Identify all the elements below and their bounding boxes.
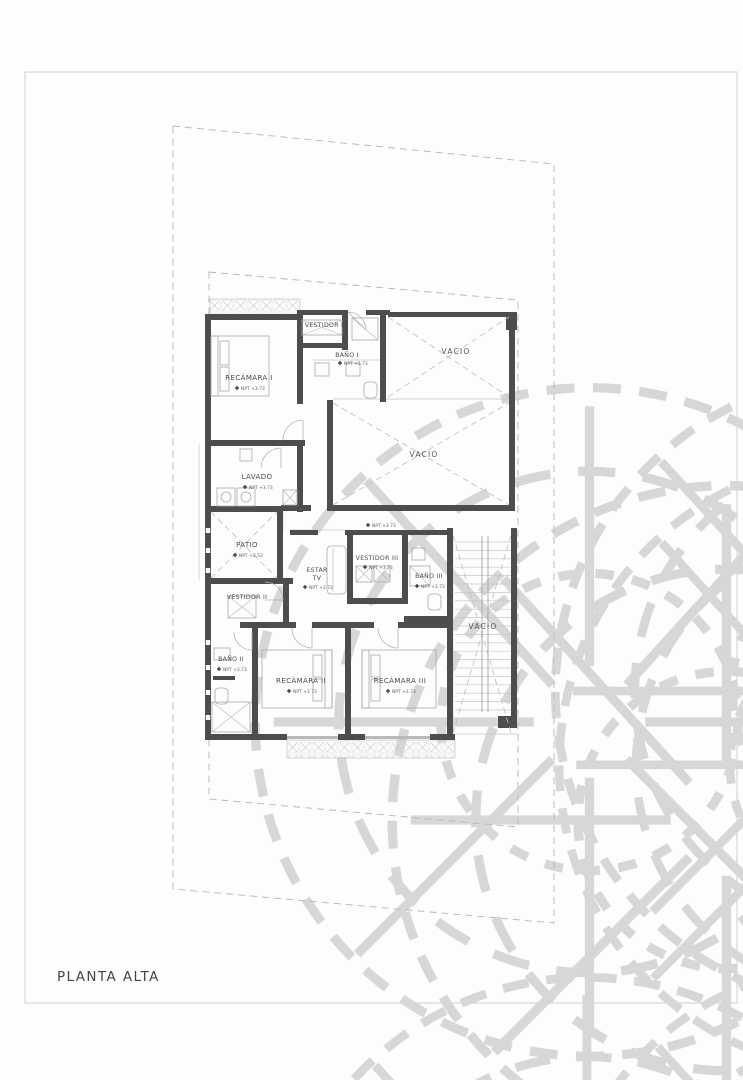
label-vestidor-2: VESTIDOR II (227, 594, 268, 601)
floor-plan-svg: VESTIDOR I BAÑO I NPT +3.73 RECÁMARA I N… (0, 0, 743, 1080)
npt-lavado: NPT +3.73 (249, 485, 273, 491)
label-patio: PATIO (236, 541, 258, 549)
label-lavado: LAVADO (242, 473, 273, 481)
npt-estar: NPT +3.73 (309, 585, 333, 591)
label-recamara-3: RECÁMARA III (374, 676, 426, 685)
label-vacio-center: VACIO (409, 450, 438, 459)
label-bano-1: BAÑO I (335, 350, 359, 359)
npt-bano-1: NPT +3.73 (344, 361, 368, 367)
npt-recamara-3: NPT +3.73 (392, 689, 416, 695)
label-recamara-2: RECÁMARA II (276, 676, 326, 685)
site-boundary (173, 126, 554, 923)
npt-vestidor-3: NPT +3.73 (369, 565, 393, 571)
label-estar-tv: TV (312, 575, 322, 582)
sheet-title: PLANTA ALTA (57, 969, 160, 985)
label-bano-3: BAÑO III (415, 571, 443, 580)
npt-recamara-1: NPT +3.73 (241, 386, 265, 392)
label-estar: ESTAR (306, 567, 328, 574)
npt-hall: NPT +3.73 (372, 523, 396, 529)
label-vestidor-3: VESTIDOR III (356, 555, 399, 562)
npt-bano-3: NPT +3.73 (421, 584, 445, 590)
npt-recamara-2: NPT +3.73 (293, 689, 317, 695)
label-vacio-top: VACIO (441, 347, 470, 356)
label-vestidor-1: VESTIDOR I (305, 322, 343, 329)
label-recamara-1: RECÁMARA I (225, 373, 272, 382)
drawing-sheet: VESTIDOR I BAÑO I NPT +3.73 RECÁMARA I N… (0, 0, 743, 1080)
label-bano-2: BAÑO II (218, 654, 244, 663)
label-vacio-stairs: VACIO (468, 622, 497, 631)
npt-bano-2: NPT +3.73 (223, 667, 247, 673)
npt-patio: NPT +3.53 (239, 553, 263, 559)
